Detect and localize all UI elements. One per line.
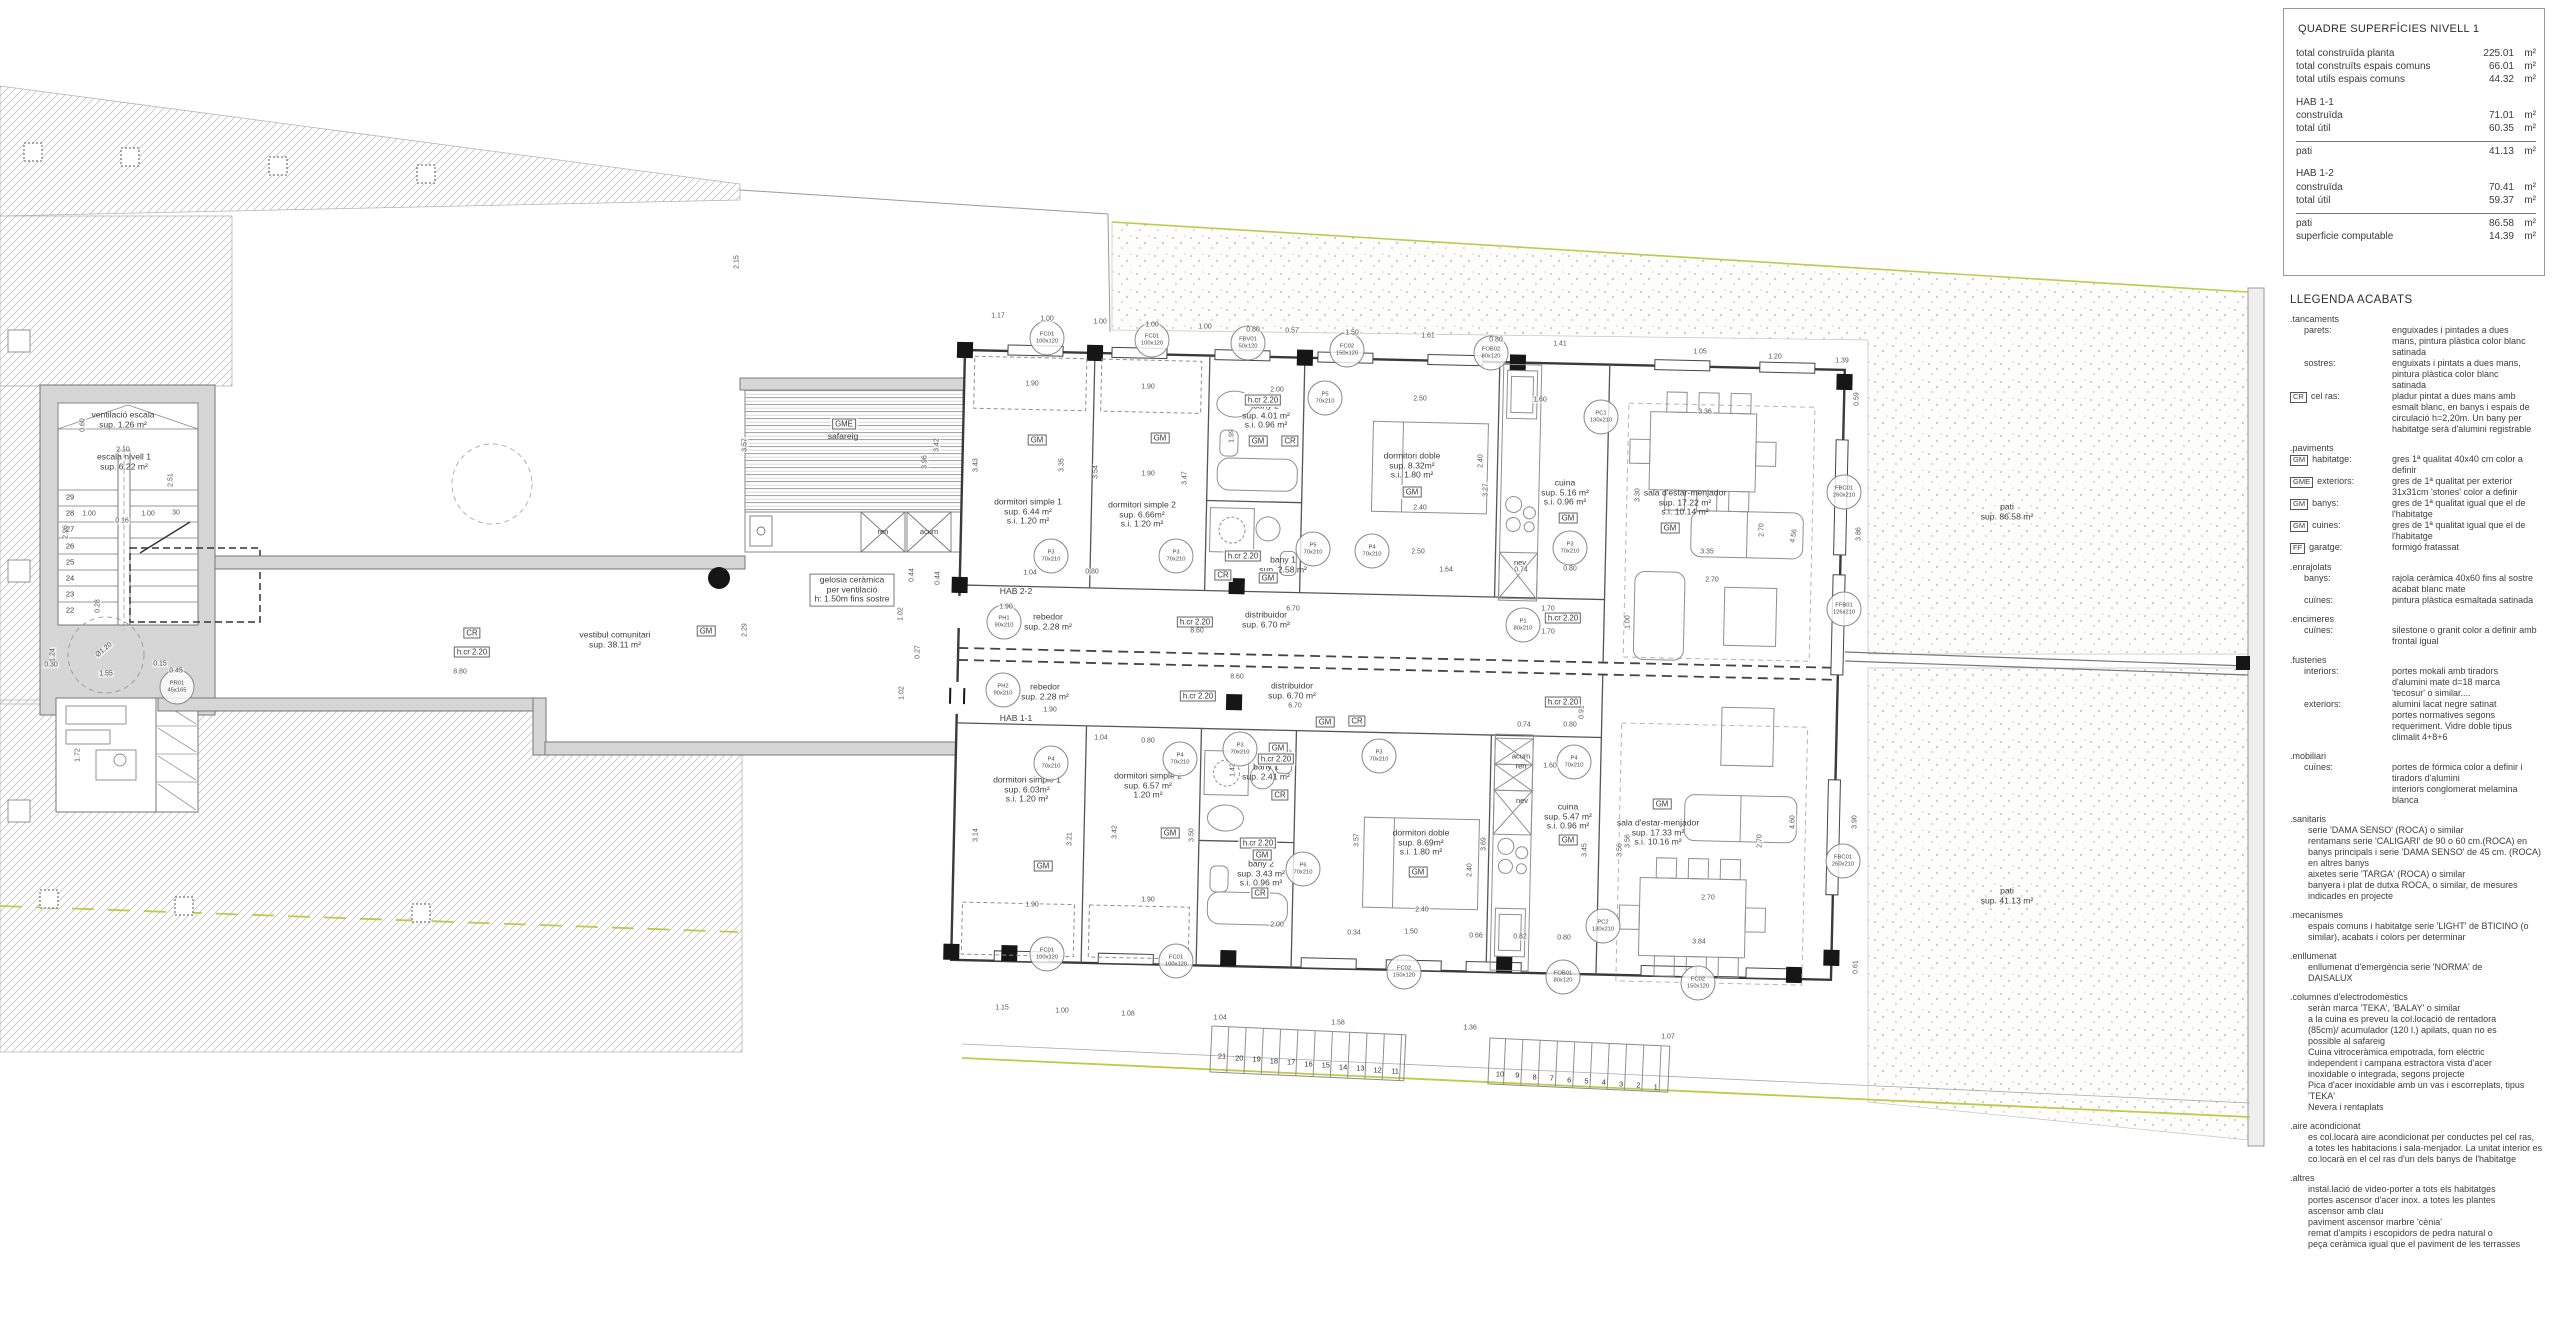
legend-item: sostres:enguixats i pintats a dues mans,… — [2304, 358, 2558, 391]
legend-item: GMhabitatge:gres 1ª qualitat 40x40 cm co… — [2304, 454, 2558, 476]
legend-section: .columnes d'electrodomèsticsseràn marca … — [2290, 992, 2558, 1113]
surfaces-table-title: QUADRE SUPERFÍCIES NIVELL 1 — [2298, 23, 2536, 35]
summary-row: total útil59.37m² — [2296, 194, 2536, 207]
numbered-strip — [1210, 1026, 1670, 1092]
finishes-legend-title: LLEGENDA ACABATS — [2290, 294, 2558, 306]
legend-section-heading: .mobiliari — [2290, 751, 2558, 762]
legend-item: GMbanys:gres de 1ª qualitat igual que el… — [2304, 498, 2558, 520]
legend-item: CRcel ras:pladur pintat a dues mans ambe… — [2304, 391, 2558, 435]
legend-section-heading: .altres — [2290, 1173, 2558, 1184]
legend-item: cuïnes:pintura plàstica esmaltada satina… — [2304, 595, 2558, 606]
summary-row: total útil60.35m² — [2296, 122, 2536, 135]
legend-section-heading: .mecanismes — [2290, 910, 2558, 921]
legend-section-heading: .fusteries — [2290, 655, 2558, 666]
summary-row: HAB 1-1 — [2296, 96, 2536, 109]
legend-section-heading: .encimeres — [2290, 614, 2558, 625]
legend-item: parets:enguixades i pintades a duesmans,… — [2304, 325, 2558, 358]
legend-item: FFgaratge:formigó fratassat — [2304, 542, 2558, 554]
finishes-legend: LLEGENDA ACABATS .tancamentsparets:engui… — [2290, 294, 2558, 1322]
legend-section: .encimerescuïnes:silestone o granit colo… — [2290, 614, 2558, 647]
floor-plan-sheet: ventilació escalasup. 1.26 m²escala nive… — [0, 0, 2560, 1322]
legend-section: .fusteriesinteriors:portes mokali amb ti… — [2290, 655, 2558, 743]
legend-section: .sanitarisserie 'DAMA SENSO' (ROCA) o si… — [2290, 814, 2558, 902]
safareig-deck — [740, 378, 965, 552]
finish-code-tag: CR — [2290, 392, 2307, 403]
summary-rows: total construïda planta225.01m²total con… — [2296, 47, 2536, 243]
summary-row: HAB 1-2 — [2296, 167, 2536, 180]
finish-code-tag: FF — [2290, 543, 2305, 554]
legend-item: cuïnes:portes de fórmica color a definir… — [2304, 762, 2558, 806]
legend-section: .altresinstal.lació de video-porter a to… — [2290, 1173, 2558, 1250]
apartment-block — [943, 342, 1853, 986]
column-dot — [708, 567, 730, 589]
finish-code-tag: GM — [2290, 455, 2308, 466]
summary-row: superficie computable14.39m² — [2296, 230, 2536, 243]
legend-section-heading: .aire acondicionat — [2290, 1121, 2558, 1132]
legend-item: cuïnes:silestone o granit color a defini… — [2304, 625, 2558, 647]
legend-item: GMEexteriors:gres de 1ª qualitat per ext… — [2304, 476, 2558, 498]
legend-section: .enllumenatenllumenat d'emergència serie… — [2290, 951, 2558, 984]
summary-row: total construïts espais comuns66.01m² — [2296, 60, 2536, 73]
legend-section-heading: .columnes d'electrodomèstics — [2290, 992, 2558, 1003]
legend-section: .mecanismesespais comuns i habitatge ser… — [2290, 910, 2558, 943]
legend-section-heading: .tancaments — [2290, 314, 2558, 325]
turning-circle — [452, 444, 532, 524]
legend-section: .pavimentsGMhabitatge:gres 1ª qualitat 4… — [2290, 443, 2558, 554]
finish-code-tag: GM — [2290, 499, 2308, 510]
legend-item: interiors:portes mokali amb tiradorsd'al… — [2304, 666, 2558, 699]
summary-row: total construïda planta225.01m² — [2296, 47, 2536, 60]
summary-row: pati41.13m² — [2296, 141, 2536, 158]
legend-item: exteriors:alumini lacat negre satinatpor… — [2304, 699, 2558, 743]
plan-drawing — [0, 0, 2280, 1322]
legend-section-heading: .enrajolats — [2290, 562, 2558, 573]
site-right-wall — [2248, 288, 2264, 1146]
surfaces-table: QUADRE SUPERFÍCIES NIVELL 1 total constr… — [2283, 8, 2545, 276]
legend-section-heading: .paviments — [2290, 443, 2558, 454]
legend-section: .tancamentsparets:enguixades i pintades … — [2290, 314, 2558, 435]
legend-section-heading: .enllumenat — [2290, 951, 2558, 962]
legend-item: banys:rajola ceràmica 40x60 fins al sost… — [2304, 573, 2558, 595]
legend-section-heading: .sanitaris — [2290, 814, 2558, 825]
finish-code-tag: GME — [2290, 477, 2313, 488]
legend-item: GMcuines:gres de 1ª qualitat igual que e… — [2304, 520, 2558, 542]
legend-section: .aire acondicionates col.locarà aire aco… — [2290, 1121, 2558, 1165]
summary-row: total utils espais comuns44.32m² — [2296, 73, 2536, 86]
legend-section: .enrajolatsbanys:rajola ceràmica 40x60 f… — [2290, 562, 2558, 606]
summary-row: pati86.58m² — [2296, 213, 2536, 230]
legend-section: .mobiliaricuïnes:portes de fórmica color… — [2290, 751, 2558, 806]
summary-row: construïda70.41m² — [2296, 181, 2536, 194]
legend-sections: .tancamentsparets:enguixades i pintades … — [2290, 314, 2558, 1250]
summary-row: construïda71.01m² — [2296, 109, 2536, 122]
finish-code-tag: GM — [2290, 521, 2308, 532]
